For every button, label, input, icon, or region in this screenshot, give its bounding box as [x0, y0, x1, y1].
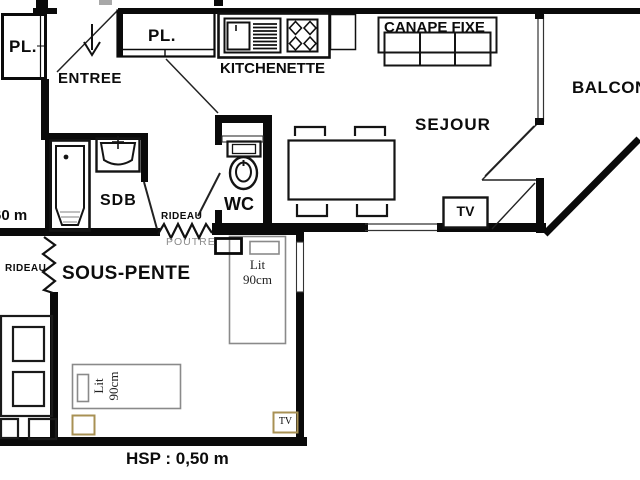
- entrance-door-leaf: [57, 10, 118, 72]
- sous-pente-window: [297, 242, 304, 292]
- hob-burners-icon: [290, 22, 317, 51]
- label-balcon: BALCON: [572, 78, 640, 98]
- bathtub-icon: [51, 141, 90, 231]
- sdb-right-wall: [141, 133, 148, 182]
- label-bed-vertical: Lit 90cm: [229, 258, 286, 288]
- label-dimension-left: 60 m: [0, 207, 27, 224]
- nightstand-icon: [216, 239, 242, 254]
- label-tv-sous-pente: TV: [273, 416, 298, 427]
- label-sous-pente: SOUS-PENTE: [62, 263, 191, 285]
- step-icon-1: [1, 419, 18, 438]
- sejour-bottom-window: [365, 224, 437, 231]
- label-entree: ENTREE: [58, 70, 122, 87]
- floor-plan: PL. ENTREE PL. KITCHENETTE CANAPE FIXE S…: [0, 0, 640, 480]
- bed-horizontal-line1: Lit: [92, 366, 107, 406]
- label-sejour: SEJOUR: [415, 115, 491, 135]
- wc-left-wall-lower: [215, 210, 222, 228]
- wall-stub-top-1: [36, 0, 48, 8]
- toilet-icon: [228, 142, 261, 190]
- bottom-wall-left: [0, 228, 160, 236]
- washbasin-icon: [97, 136, 140, 172]
- label-wc: WC: [224, 194, 254, 215]
- corner-diagonal-line: [492, 183, 535, 229]
- label-rideau-hall: RIDEAU: [161, 211, 202, 222]
- sejour-corner-wall: [536, 178, 544, 233]
- wc-left-wall-upper: [215, 115, 222, 145]
- balcony-window: [535, 13, 544, 125]
- sejour-corner-glazing: [482, 124, 537, 229]
- entrance-arrow-icon: [84, 24, 100, 55]
- wc-door-leaf: [198, 173, 220, 216]
- label-poutre: POUTRE: [166, 236, 216, 248]
- label-canape-fixe: CANAPE FIXE: [384, 19, 485, 36]
- label-bed-horizontal: Lit 90cm: [92, 366, 132, 406]
- label-sdb: SDB: [100, 192, 137, 210]
- sdb-door-leaf: [144, 182, 157, 229]
- label-kitchenette: KITCHENETTE: [220, 60, 325, 77]
- label-tv-sejour: TV: [443, 203, 488, 219]
- wall-stub-top-3: [214, 0, 223, 6]
- balcony-diagonal-wall: [545, 139, 639, 234]
- bed-vertical-line1: Lit: [229, 258, 286, 273]
- kitchen-counter: [219, 14, 356, 58]
- dining-table-icon: [289, 141, 395, 200]
- kitchen-unit-icon: [331, 15, 356, 50]
- wall-stub-top-2: [99, 0, 112, 5]
- bed-vertical-line2: 90cm: [229, 273, 286, 288]
- label-hsp: HSP : 0,50 m: [126, 449, 229, 469]
- drainboard-icon: [253, 24, 277, 49]
- label-closet-hall: PL.: [148, 26, 176, 46]
- wc-right-wall: [263, 115, 272, 232]
- sink-basin-icon: [228, 23, 250, 50]
- label-closet-entry: PL.: [9, 37, 37, 57]
- balcony-door-line-2: [485, 126, 534, 176]
- left-wall-upper: [41, 79, 49, 140]
- bunk-icon: [1, 316, 56, 439]
- storage-box-icon: [73, 416, 95, 435]
- hall-door-leaf: [166, 59, 218, 113]
- label-rideau-alcove: RIDEAU: [5, 263, 46, 274]
- bed-horizontal-line2: 90cm: [107, 366, 122, 406]
- sous-pente-top-wall: [212, 229, 304, 235]
